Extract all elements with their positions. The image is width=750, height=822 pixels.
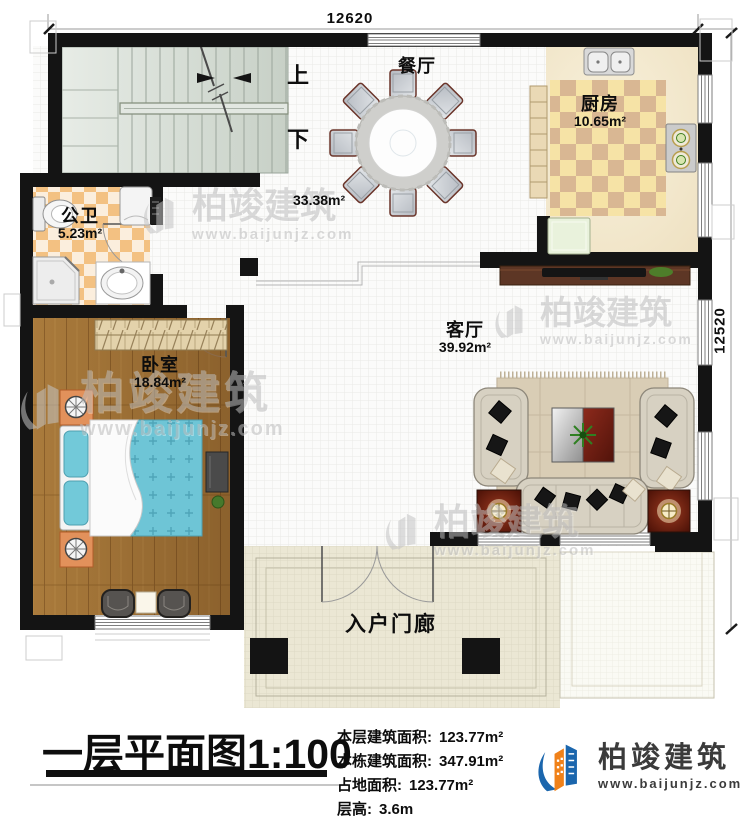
room-label-porch: 入户门廊 xyxy=(345,608,437,638)
stairs-down-label: 下 xyxy=(287,122,309,154)
room-name-bedroom: 卧室 xyxy=(105,355,215,375)
living-bottom-window xyxy=(478,533,650,545)
bed xyxy=(60,420,202,536)
side-table-right xyxy=(648,490,690,532)
dresser xyxy=(206,452,228,492)
kitchen-sink xyxy=(584,48,634,75)
small-table xyxy=(136,592,156,613)
stat-label: 本层建筑面积: xyxy=(337,729,432,746)
coffee-table xyxy=(552,408,614,462)
bedroom-chair xyxy=(158,590,190,617)
dining-table-set xyxy=(330,70,476,216)
stat-label: 层高: xyxy=(337,801,372,818)
nightstand xyxy=(60,532,93,567)
room-area-living: 39.92m² xyxy=(410,340,520,356)
room-area-bedroom: 18.84m² xyxy=(105,375,215,391)
dining-top-window xyxy=(368,34,480,46)
plant xyxy=(212,496,224,508)
room-label-kitchen: 厨房 10.65m² xyxy=(545,94,655,130)
dimension-right: 12520 xyxy=(712,291,729,371)
stove xyxy=(666,124,696,172)
stairs-up-label: 上 xyxy=(287,58,309,90)
company-name: 柏竣建筑 xyxy=(598,744,742,773)
porch-column xyxy=(462,638,500,674)
stat-value: 123.77m² xyxy=(409,777,473,794)
terrace-floor xyxy=(560,552,714,698)
stat-label: 本栋建筑面积: xyxy=(337,753,432,770)
company-url: www.baijunjz.com xyxy=(598,777,742,790)
tv-cabinet xyxy=(500,266,690,285)
bedroom-chair xyxy=(102,590,134,617)
nightstand xyxy=(60,390,93,425)
title-underline xyxy=(46,770,327,777)
stat-row: 占地面积:123.77m² xyxy=(337,774,503,795)
company-logo-icon xyxy=(534,737,590,797)
stat-label: 占地面积: xyxy=(337,777,402,794)
staircase xyxy=(62,44,288,173)
stat-row: 本栋建筑面积:347.91m² xyxy=(337,750,503,771)
left-loveseat xyxy=(474,388,528,486)
wardrobe xyxy=(95,320,227,350)
floor-plan-page: { "colors": { "wall": "#141414", "logo_b… xyxy=(0,0,750,814)
dimension-top: 12620 xyxy=(300,10,400,27)
building-stats: 本层建筑面积:123.77m² 本栋建筑面积:347.91m² 占地面积:123… xyxy=(337,726,503,822)
bathroom-sink xyxy=(96,262,150,304)
room-label-living: 客厅 39.92m² xyxy=(410,320,520,356)
room-name-kitchen: 厨房 xyxy=(545,94,655,114)
plant xyxy=(649,267,673,277)
side-table-left xyxy=(477,490,521,532)
stat-value: 3.6m xyxy=(379,801,413,818)
room-name-living: 客厅 xyxy=(410,320,520,340)
tv xyxy=(542,268,646,277)
fridge xyxy=(548,218,590,254)
bedroom-bottom-window xyxy=(95,616,210,640)
company-logo: 柏竣建筑 www.baijunjz.com xyxy=(534,737,742,797)
room-label-bathroom: 公卫 5.23m² xyxy=(35,206,125,242)
bottom-sofa xyxy=(516,478,648,534)
room-label-dining: 餐厅 xyxy=(398,56,436,76)
stat-row: 本层建筑面积:123.77m² xyxy=(337,726,503,747)
porch-column xyxy=(250,638,288,674)
room-name-bathroom: 公卫 xyxy=(35,206,125,226)
room-area-kitchen: 10.65m² xyxy=(545,114,655,130)
corner-shower xyxy=(33,257,79,304)
room-name-dining: 餐厅 xyxy=(398,56,436,76)
room-area-dining-wrap: 33.38m² xyxy=(293,193,345,209)
sofa-set xyxy=(474,375,694,534)
right-sofa xyxy=(640,388,694,492)
room-area-bathroom: 5.23m² xyxy=(35,226,125,242)
stat-value: 123.77m² xyxy=(439,729,503,746)
room-label-bedroom: 卧室 18.84m² xyxy=(105,355,215,391)
room-area-dining: 33.38m² xyxy=(293,193,345,209)
stat-value: 347.91m² xyxy=(439,753,503,770)
title-underline-thin xyxy=(30,784,348,786)
stat-row: 层高:3.6m xyxy=(337,798,503,819)
